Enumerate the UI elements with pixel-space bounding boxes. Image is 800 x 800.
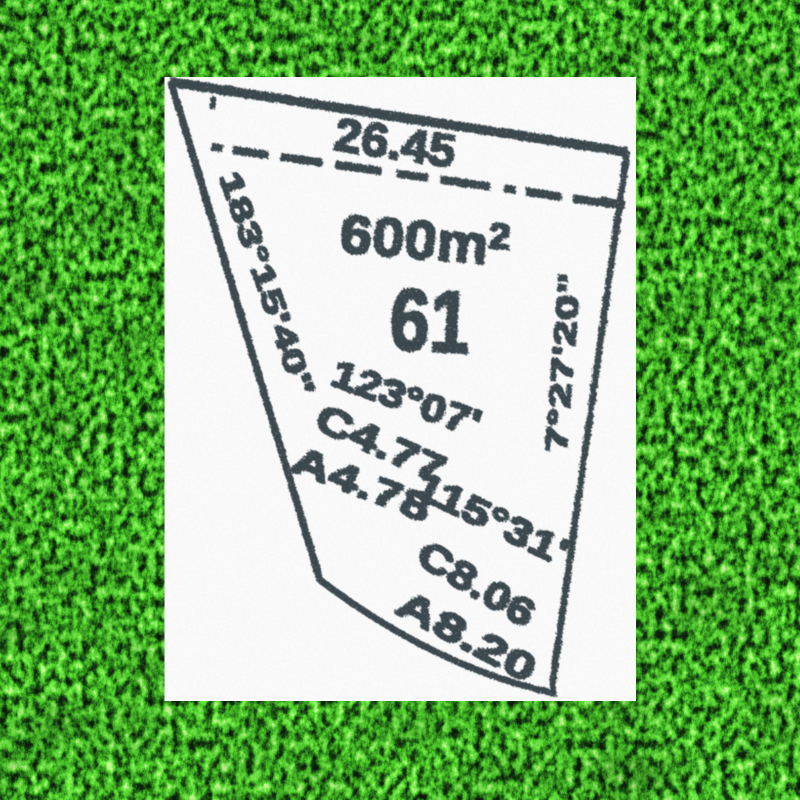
svg-text:61: 61	[388, 269, 473, 372]
